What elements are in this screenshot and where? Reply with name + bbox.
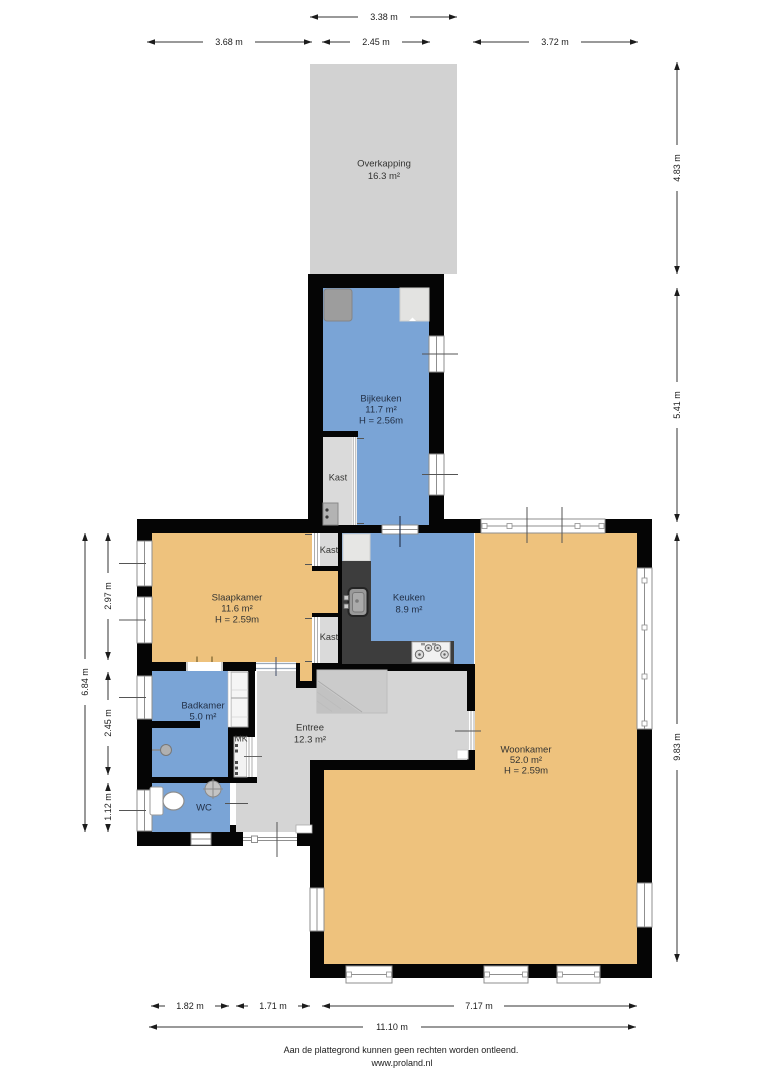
svg-text:H = 2.56m: H = 2.56m: [359, 416, 403, 427]
svg-text:Kast: Kast: [320, 545, 339, 555]
svg-text:Kast: Kast: [320, 632, 339, 642]
svg-text:6.84 m: 6.84 m: [80, 668, 90, 696]
svg-text:H = 2.59m: H = 2.59m: [215, 615, 259, 626]
svg-text:16.3 m²: 16.3 m²: [368, 171, 400, 182]
svg-text:52.0 m²: 52.0 m²: [510, 755, 542, 766]
svg-text:3.72 m: 3.72 m: [541, 37, 569, 47]
svg-text:Aan de plattegrond kunnen geen: Aan de plattegrond kunnen geen rechten w…: [284, 1045, 519, 1055]
svg-text:5.0 m²: 5.0 m²: [190, 712, 217, 723]
svg-text:Overkapping: Overkapping: [357, 159, 411, 170]
svg-text:2.45 m: 2.45 m: [103, 709, 113, 737]
svg-text:Entree: Entree: [296, 723, 324, 734]
svg-text:Woonkamer: Woonkamer: [500, 745, 551, 756]
svg-text:3.38 m: 3.38 m: [370, 12, 398, 22]
svg-text:1.71 m: 1.71 m: [259, 1001, 287, 1011]
svg-text:WC: WC: [196, 803, 212, 814]
svg-text:2.45 m: 2.45 m: [362, 37, 390, 47]
svg-text:8.9 m²: 8.9 m²: [396, 605, 423, 616]
svg-text:4.83 m: 4.83 m: [672, 154, 682, 182]
svg-text:11.7 m²: 11.7 m²: [365, 405, 397, 416]
svg-text:3.68 m: 3.68 m: [215, 37, 243, 47]
svg-text:Badkamer: Badkamer: [181, 701, 224, 712]
svg-text:11.10 m: 11.10 m: [376, 1022, 408, 1032]
svg-text:1.12 m: 1.12 m: [103, 793, 113, 821]
svg-text:9.83 m: 9.83 m: [672, 733, 682, 761]
svg-text:MK: MK: [235, 734, 248, 744]
svg-text:H = 2.59m: H = 2.59m: [504, 766, 548, 777]
svg-text:1.82 m: 1.82 m: [176, 1001, 204, 1011]
svg-text:Kast: Kast: [329, 473, 348, 483]
svg-text:Keuken: Keuken: [393, 593, 425, 604]
svg-text:11.6 m²: 11.6 m²: [221, 604, 253, 615]
svg-text:2.97 m: 2.97 m: [103, 582, 113, 610]
svg-text:Bijkeuken: Bijkeuken: [360, 394, 401, 405]
svg-text:7.17 m: 7.17 m: [465, 1001, 493, 1011]
svg-text:5.41 m: 5.41 m: [672, 391, 682, 419]
svg-text:Slaapkamer: Slaapkamer: [212, 593, 263, 604]
svg-text:12.3 m²: 12.3 m²: [294, 735, 326, 746]
svg-text:www.proland.nl: www.proland.nl: [370, 1058, 432, 1068]
